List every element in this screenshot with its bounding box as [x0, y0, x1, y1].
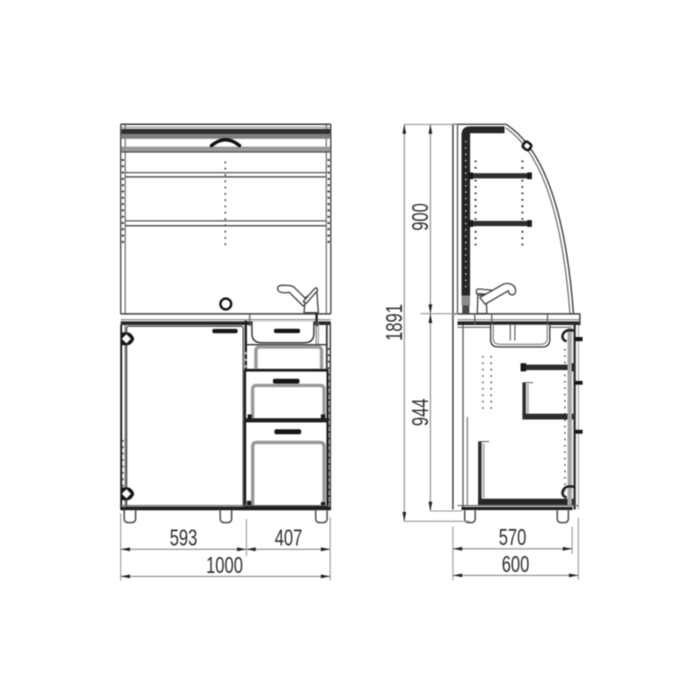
- svg-text:407: 407: [275, 526, 303, 551]
- svg-text:1891: 1891: [382, 304, 407, 341]
- svg-text:593: 593: [170, 526, 198, 551]
- svg-text:600: 600: [502, 552, 530, 577]
- svg-text:944: 944: [409, 398, 434, 426]
- svg-text:570: 570: [499, 525, 527, 550]
- svg-text:900: 900: [409, 203, 434, 231]
- svg-text:1000: 1000: [206, 553, 243, 578]
